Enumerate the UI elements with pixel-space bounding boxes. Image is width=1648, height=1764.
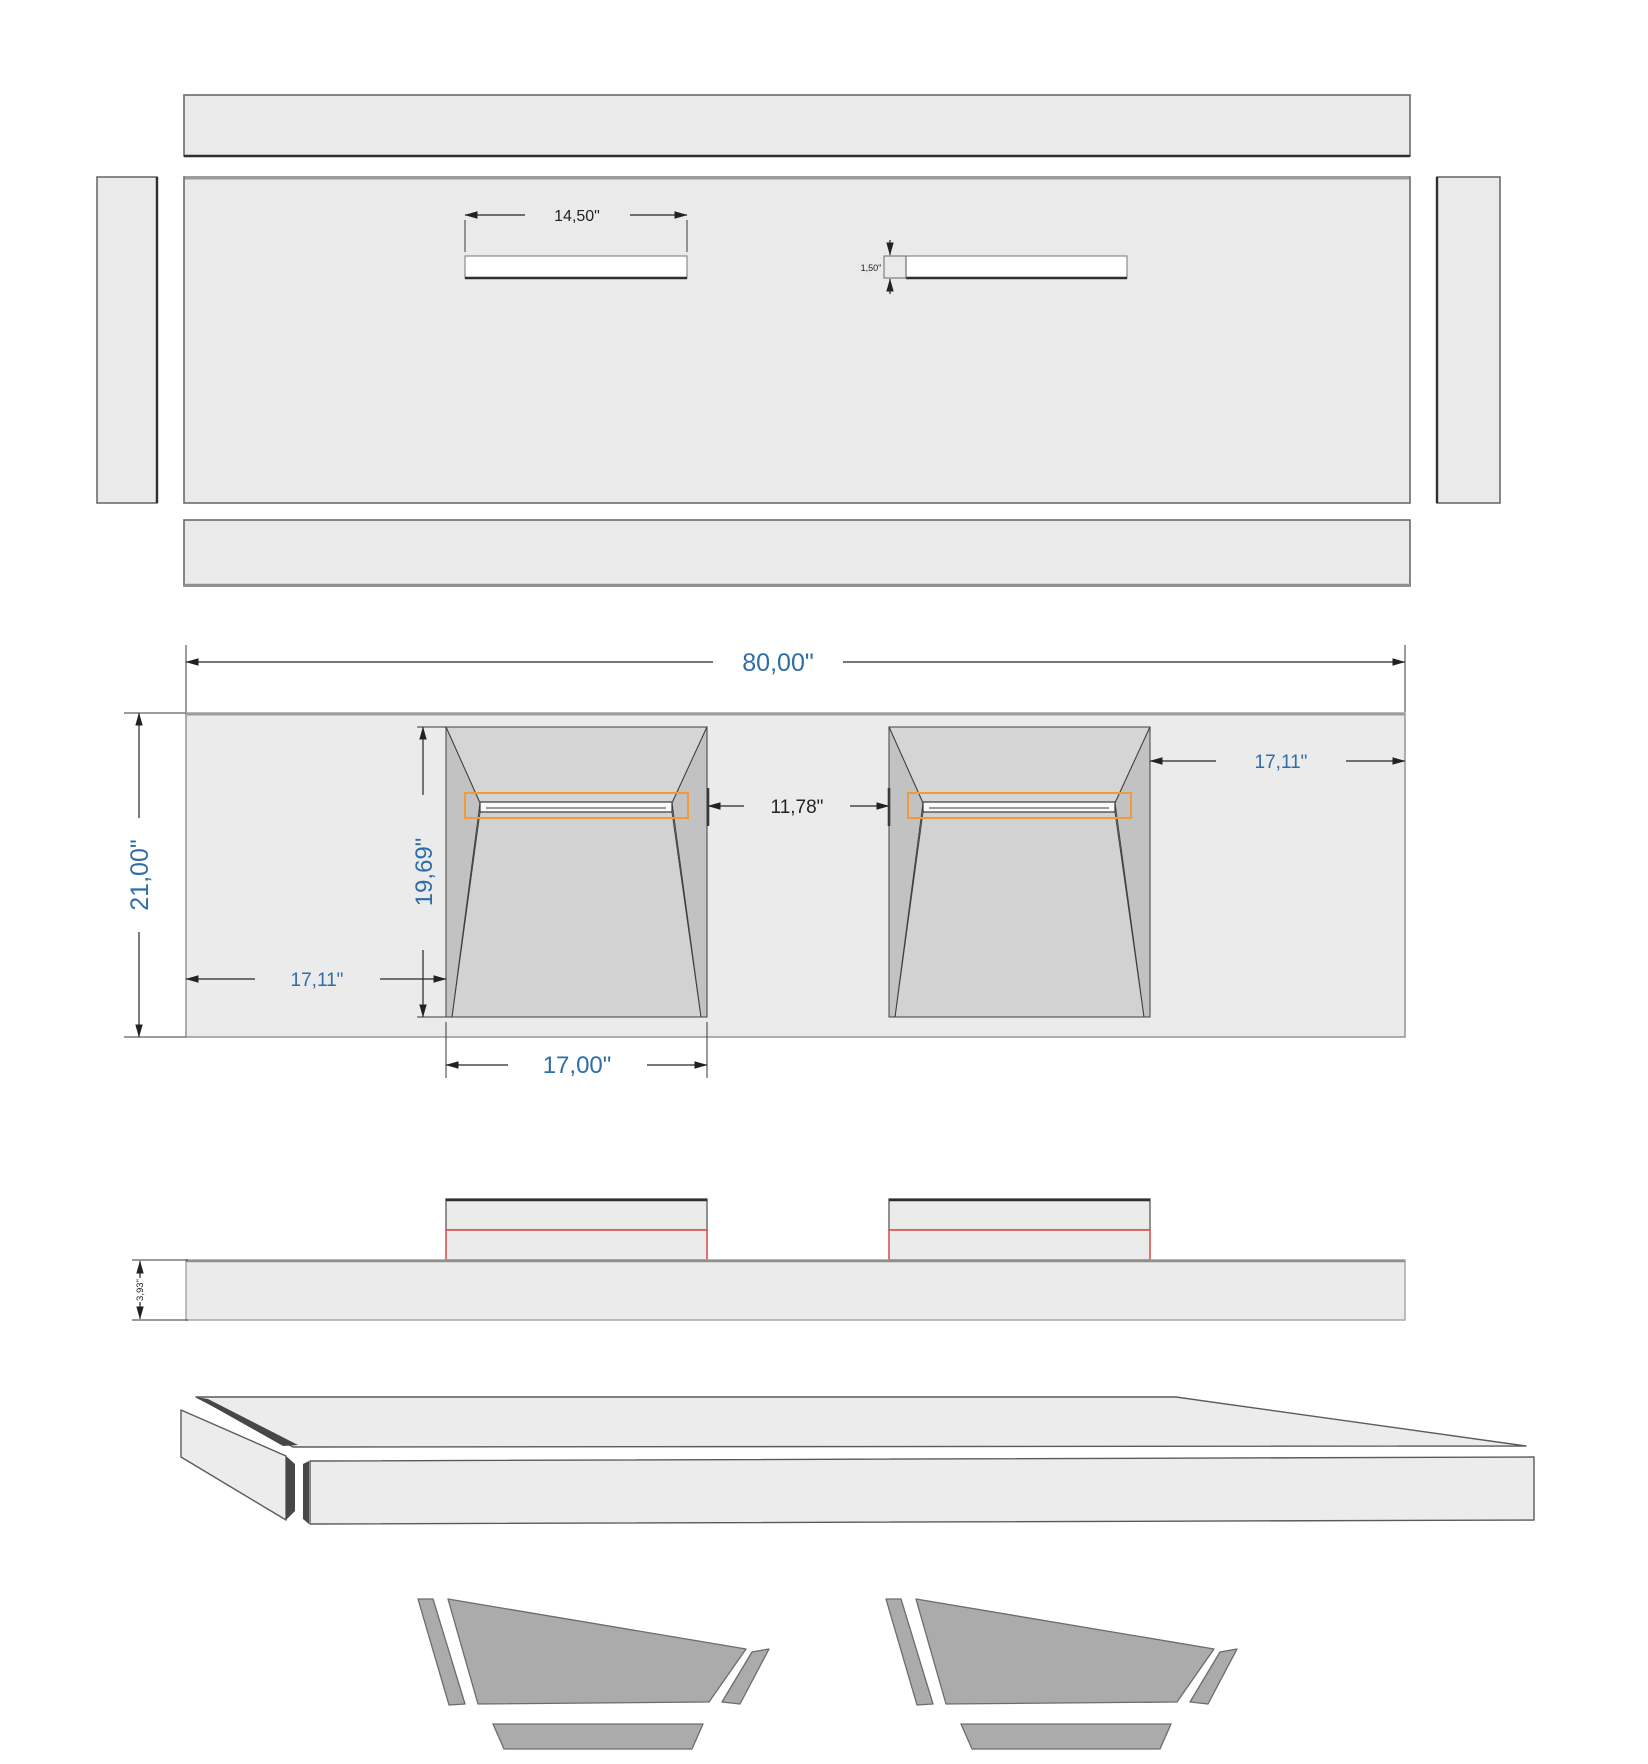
dim-overall-depth-label: 21,00" (126, 839, 154, 910)
dim-offset-right-label: 17,11" (1255, 752, 1308, 773)
dim-between-basins-label: 11,78" (771, 797, 824, 818)
countertop-plan (186, 713, 1405, 1037)
dim-offset-left-label: 17,11" (291, 970, 344, 991)
dim-slot-width-label: 14,50" (554, 208, 600, 225)
basin-box-right (889, 1199, 1150, 1230)
dim-basin-width-label: 17,00" (543, 1052, 612, 1079)
front-apron-panel (310, 1457, 1534, 1524)
basin-box-left-red (446, 1230, 707, 1260)
drawing-page: 14,50" 1,50" 80,00" 21,00" (0, 0, 1648, 1764)
edge-strip-bottom (184, 520, 1410, 586)
technical-drawing-canvas: 14,50" 1,50" 80,00" 21,00" (0, 0, 1648, 1764)
dim-overall-width-label: 80,00" (742, 649, 813, 677)
basin-plan-left (446, 727, 707, 1017)
apron-left-dark-edge (303, 1461, 309, 1524)
deck-slot-right (906, 256, 1127, 278)
edge-strip-left (97, 177, 157, 503)
edge-strip-top (184, 95, 1410, 156)
deck-slot-left (465, 256, 687, 278)
end-cap-dark-edge (286, 1456, 295, 1520)
main-deck-panel (184, 177, 1410, 503)
basin-plan-right (889, 727, 1150, 1017)
dim-slab-thickness-label: 3,93" (135, 1279, 146, 1301)
dim-basin-length-label: 19,69" (411, 838, 438, 907)
dim-slot-height-label: 1,50" (861, 263, 882, 273)
basin-box-left (446, 1199, 707, 1230)
edge-strip-right (1437, 177, 1500, 503)
basin-box-right-red (889, 1230, 1150, 1260)
slab-elevation (186, 1260, 1405, 1320)
